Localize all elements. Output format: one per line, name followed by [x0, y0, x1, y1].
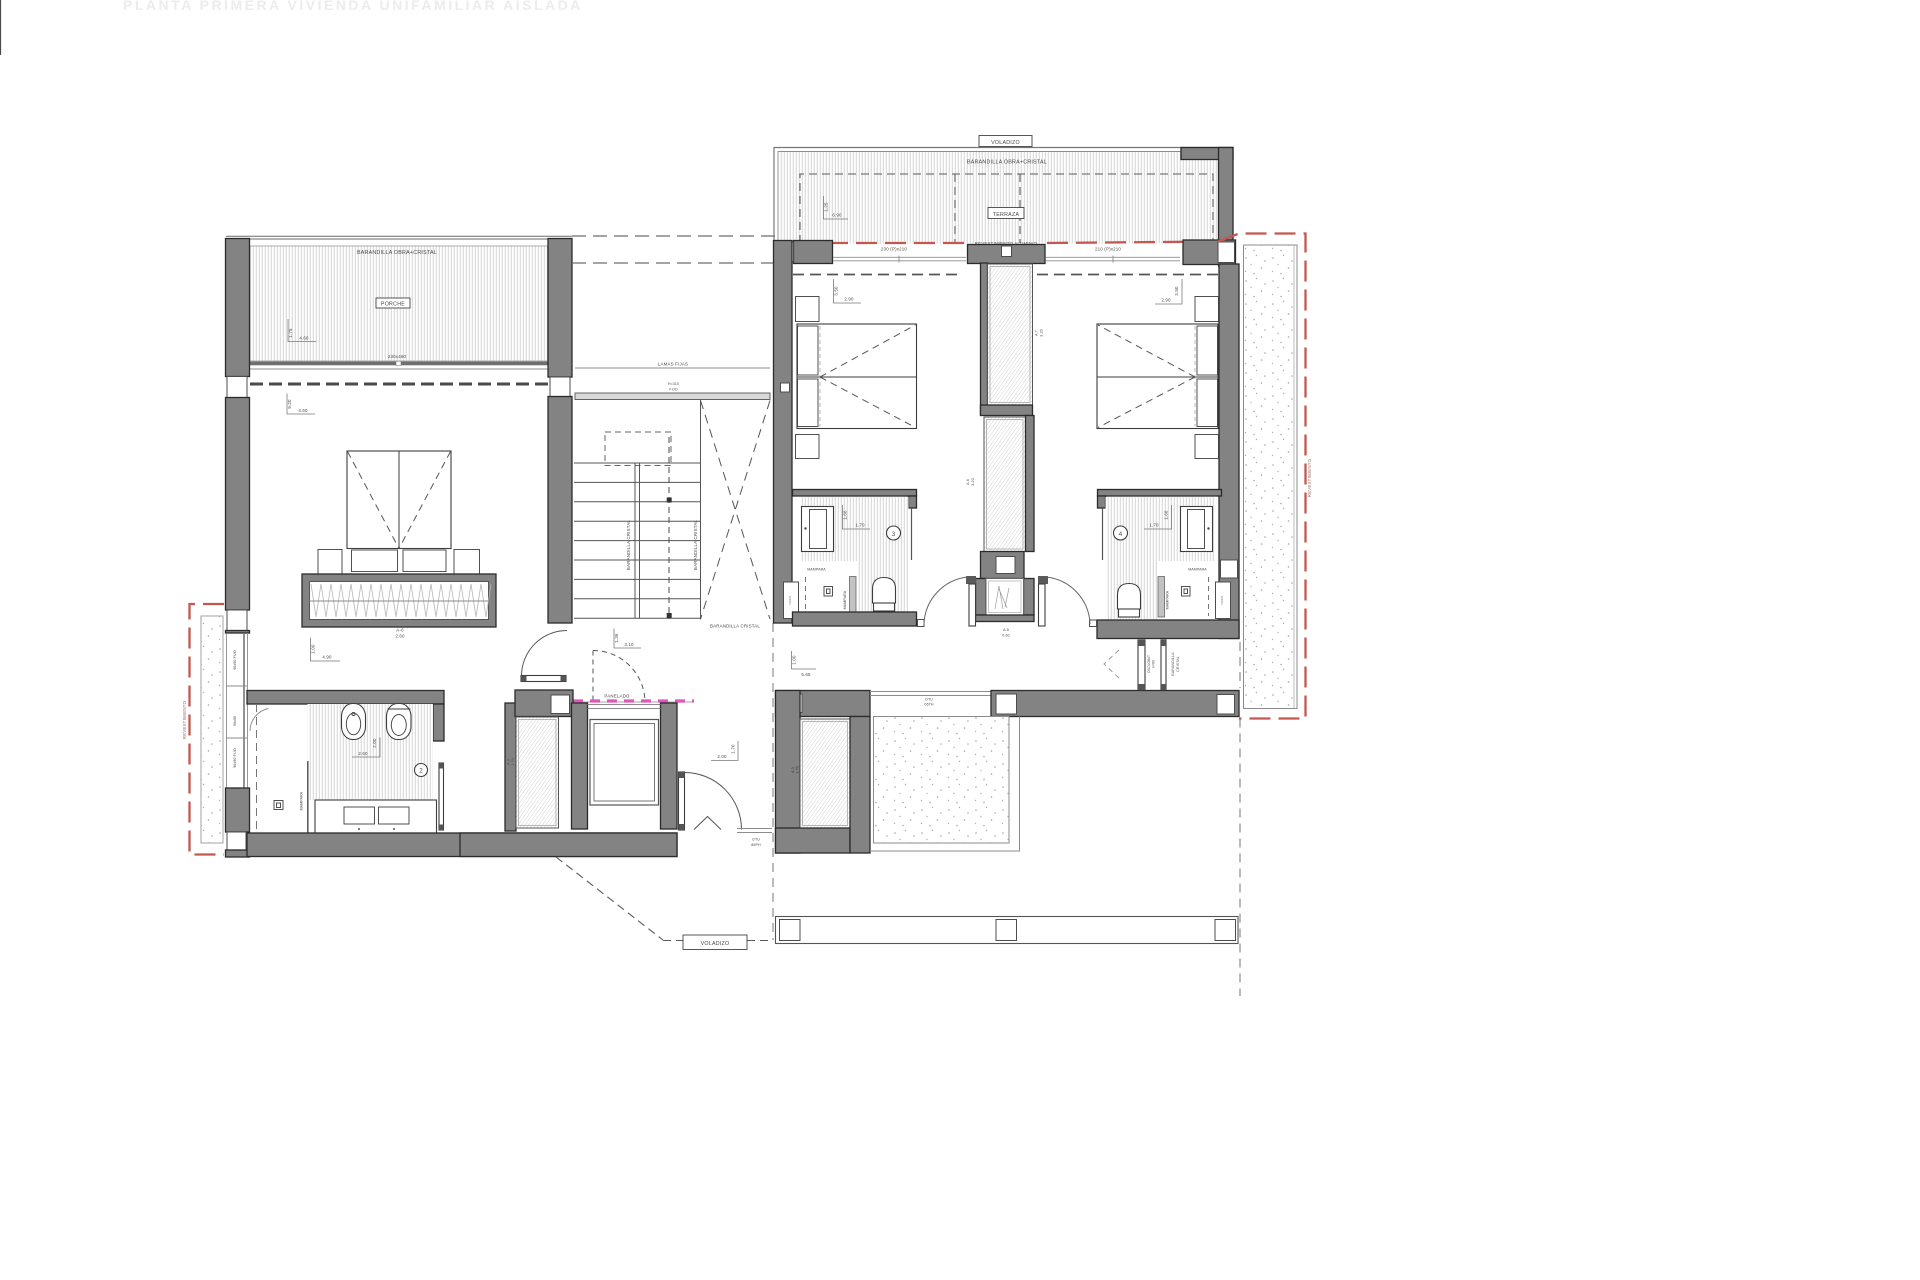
svg-text:REVESTIMIENTO: REVESTIMIENTO [1307, 458, 1312, 497]
svg-text:2.00: 2.00 [372, 738, 377, 748]
svg-text:90x90: 90x90 [233, 716, 237, 726]
svg-text:LAMAS FIJAS: LAMAS FIJAS [658, 362, 688, 367]
svg-text:3.10: 3.10 [624, 642, 634, 647]
svg-text:A.3: A.3 [507, 759, 511, 765]
svg-text:REVESTIMIENTO: REVESTIMIENTO [182, 700, 187, 739]
svg-text:6.90: 6.90 [832, 213, 842, 218]
svg-text:9.20: 9.20 [287, 399, 292, 409]
svg-text:0.60: 0.60 [1002, 634, 1009, 638]
svg-text:MAMPARA: MAMPARA [1188, 568, 1207, 572]
svg-text:230 (P)x210: 230 (P)x210 [881, 247, 907, 252]
svg-text:1.75: 1.75 [288, 328, 293, 338]
svg-text:PANELADO: PANELADO [604, 694, 630, 699]
svg-text:4.60: 4.60 [298, 408, 308, 413]
svg-text:BARANDILLA: BARANDILLA [1171, 652, 1175, 676]
svg-text:MAMPARA: MAMPARA [843, 590, 847, 609]
svg-text:1.70: 1.70 [855, 523, 865, 528]
svg-text:1.00: 1.00 [792, 655, 797, 665]
svg-text:TERRAZA: TERRAZA [993, 212, 1020, 218]
svg-text:A-6: A-6 [396, 628, 404, 633]
svg-text:A-5: A-5 [1003, 628, 1009, 632]
svg-text:BARANDILLA CRISTAL: BARANDILLA CRISTAL [626, 520, 631, 570]
svg-text:3: 3 [892, 531, 896, 538]
svg-text:2.60: 2.60 [358, 751, 368, 756]
svg-text:1.25: 1.25 [824, 202, 829, 212]
svg-text:PORCHE: PORCHE [381, 302, 405, 308]
svg-text:06TH: 06TH [924, 703, 933, 707]
svg-text:OTU: OTU [752, 838, 760, 842]
svg-text:90x90 FIJO: 90x90 FIJO [233, 650, 237, 670]
svg-text:3.20: 3.20 [1040, 329, 1044, 336]
svg-text:VOLADIZO: VOLADIZO [701, 941, 730, 947]
svg-text:3.20: 3.20 [971, 478, 975, 485]
svg-text:FIJO: FIJO [669, 388, 677, 392]
svg-text:1.66: 1.66 [843, 510, 848, 520]
svg-text:5.65: 5.65 [801, 672, 811, 677]
svg-text:1.70: 1.70 [1149, 523, 1159, 528]
svg-text:VOLADIZO: VOLADIZO [991, 140, 1020, 146]
svg-text:1.70: 1.70 [796, 766, 800, 773]
svg-text:85PH: 85PH [751, 843, 761, 847]
svg-text:1.70: 1.70 [731, 744, 736, 754]
svg-text:BARANDILLA OBRA+CRISTAL: BARANDILLA OBRA+CRISTAL [357, 250, 437, 256]
svg-text:2.60: 2.60 [395, 634, 405, 639]
svg-text:210 (P)x210: 210 (P)x210 [1095, 247, 1121, 252]
svg-text:CRISTAL: CRISTAL [1176, 656, 1180, 672]
svg-text:A.6: A.6 [966, 479, 970, 485]
svg-text:MAMPARA: MAMPARA [1166, 590, 1170, 609]
svg-text:H=80: H=80 [1152, 660, 1156, 668]
svg-text:OSCIL: OSCIL [1220, 595, 1224, 604]
svg-text:1.00: 1.00 [311, 644, 316, 654]
svg-text:4.90: 4.90 [322, 655, 332, 660]
svg-text:PLANTA PRIMERA VIVIENDA UNIFAM: PLANTA PRIMERA VIVIENDA UNIFAMILIAR AISL… [123, 0, 583, 13]
svg-text:H=310: H=310 [668, 382, 679, 386]
svg-text:MAMPARA: MAMPARA [807, 568, 826, 572]
svg-text:BARANDILLA OBRA+CRISTAL: BARANDILLA OBRA+CRISTAL [967, 160, 1047, 166]
svg-text:1.66: 1.66 [1164, 510, 1169, 520]
svg-text:BARANDILLA CRISTAL: BARANDILLA CRISTAL [710, 624, 760, 629]
svg-text:MAMPARA: MAMPARA [300, 791, 304, 810]
svg-text:OSCILOBAT: OSCILOBAT [1147, 655, 1151, 673]
svg-text:A.7: A.7 [1035, 330, 1039, 336]
svg-text:3.50: 3.50 [1174, 286, 1179, 296]
svg-text:1.70: 1.70 [511, 758, 515, 765]
svg-text:A.3: A.3 [791, 767, 795, 773]
svg-text:4: 4 [1119, 531, 1123, 538]
svg-text:90x90 FIJO: 90x90 FIJO [233, 748, 237, 768]
svg-text:2: 2 [419, 768, 423, 775]
svg-text:3.50: 3.50 [834, 286, 839, 296]
svg-text:2.00: 2.00 [717, 754, 727, 759]
svg-text:2.90: 2.90 [1161, 298, 1171, 303]
svg-text:1.36: 1.36 [614, 633, 619, 643]
svg-text:230x460: 230x460 [388, 354, 407, 359]
svg-text:OSCIL: OSCIL [788, 595, 792, 604]
svg-text:OTU: OTU [925, 698, 933, 702]
svg-text:2.90: 2.90 [844, 297, 854, 302]
svg-text:4.60: 4.60 [299, 336, 309, 341]
svg-text:BARANDILLA CRISTAL: BARANDILLA CRISTAL [693, 520, 698, 570]
